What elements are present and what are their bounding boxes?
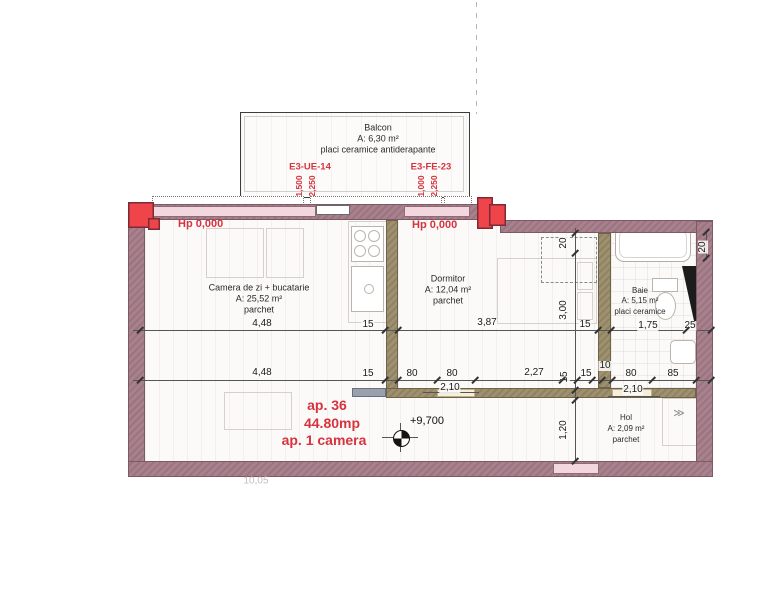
dormitor-area: A: 12,04 m² [425,286,472,295]
window-height-1: 2,250 [308,175,317,196]
wall-top-right [500,220,713,233]
dim-label: 10 [598,361,611,371]
sink-faucet [364,284,374,294]
window-width-2: 1,000 [417,175,426,196]
living-area: A: 25,52 m² [236,295,283,304]
door-swing-icon: ≫ [673,409,685,420]
hol-finish: parchet [613,436,640,444]
balcony-name: Balcon [364,124,392,133]
door-bottom [553,463,599,474]
apartment-number: ap. 36 [307,398,347,412]
bathtub-inner [619,230,687,258]
window-dormitor [404,206,470,217]
pillow-outline [577,292,593,320]
window-width-1: 1,500 [295,175,304,196]
level-marker-icon [393,430,410,447]
baie-finish: placi ceramice [614,308,665,316]
hol-name: Hol [620,414,632,422]
window-living-balcony [148,206,316,217]
dim-door-label: 2,10 [622,385,643,395]
dim-label: 4,48 [251,368,272,378]
dim-label: 20 [698,240,708,253]
armchair-outline [266,228,304,278]
dim-label: 85 [666,369,679,379]
hol-area: A: 2,09 m² [608,425,645,433]
window-height-2: 2,250 [430,175,439,196]
hol-cabinet [662,398,697,446]
balcony-area: A: 6,30 m² [357,135,399,144]
wall-bottom [128,461,713,477]
dim-label: 3,87 [476,318,497,328]
dim-chain-upper [133,330,711,331]
window-code-1: E3-UE-14 [289,162,331,172]
corner-marker-left-step [148,218,160,230]
dim-label: 80 [445,369,458,379]
toilet-tank [652,278,678,292]
balcony-finish: placi ceramice antiderapante [320,146,435,155]
dormitor-name: Dormitor [431,275,466,284]
living-finish: parchet [244,306,274,315]
apartment-type: ap. 1 camera [282,433,367,447]
window-leaf [316,205,350,215]
dim-label: 15 [361,369,374,379]
baie-area: A: 5,15 m² [622,297,659,305]
rug-outline [224,392,292,430]
dim-label: 1,20 [559,419,569,440]
baie-name: Baie [632,287,648,295]
apartment-area: 44.80mp [304,416,360,430]
dormitor-finish: parchet [433,297,463,306]
counter-end-block [352,388,386,397]
dim-label: 15 [578,320,591,330]
dim-label: 80 [624,369,637,379]
hp-level-left: Hp 0,000 [178,219,223,230]
floor-plan-sheet: Balcon A: 6,30 m² placi ceramice antider… [0,0,782,600]
dim-label: 20 [559,236,569,249]
dim-label: 1,75 [637,321,658,331]
dim-door-label: 2,10 [439,383,460,393]
dim-label: 15 [361,320,374,330]
window-code-2: E3-FE-23 [411,162,452,172]
wall-living-dormitor [386,220,398,398]
living-name: Camera de zi + bucatarie [209,284,310,293]
level-value: +9,700 [410,416,444,427]
dim-label: 2,27 [523,368,544,378]
dim-door2-line [608,396,660,397]
wall-left [128,204,145,477]
wardrobe-dashed [541,237,597,283]
washbasin [670,340,696,364]
stove-burner [368,230,380,242]
faint-dimension-note: 10,05 [243,476,268,487]
stove-burner [368,245,380,257]
corner-marker-mid-step [489,204,506,226]
dim-chain-vertical [575,228,576,461]
stove-burner [354,245,366,257]
hp-level-right: Hp 0,000 [412,220,457,231]
stove-burner [354,230,366,242]
dim-chain-lower [133,380,711,381]
table-outline [206,228,264,278]
dim-label: 15 [579,369,592,379]
axis-centerline [476,2,477,114]
dim-label: 80 [405,369,418,379]
dim-label: 4,48 [251,319,272,329]
dim-label: 3,00 [559,299,569,320]
